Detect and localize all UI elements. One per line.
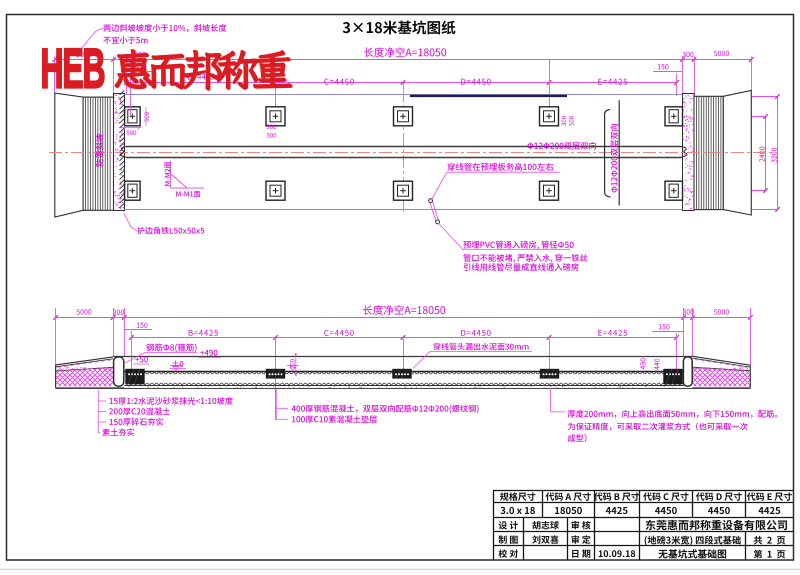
svg-text:HEB: HEB <box>41 37 105 100</box>
